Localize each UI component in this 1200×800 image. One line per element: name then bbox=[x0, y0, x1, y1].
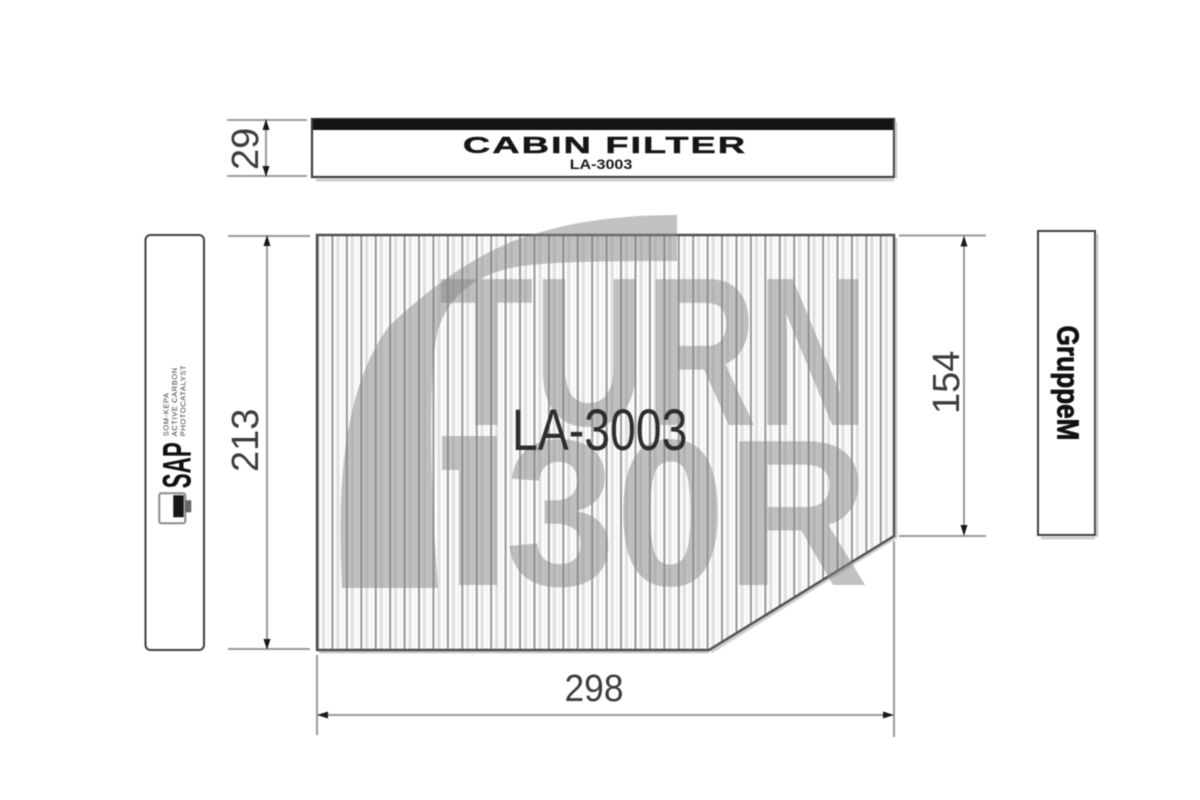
svg-text:298: 298 bbox=[565, 667, 624, 709]
svg-text:154: 154 bbox=[926, 351, 968, 414]
svg-text:LA-3003: LA-3003 bbox=[512, 398, 687, 463]
svg-text:CABIN FILTER: CABIN FILTER bbox=[463, 132, 747, 158]
svg-text:29: 29 bbox=[225, 128, 267, 170]
svg-text:PHOTOCATALYST: PHOTOCATALYST bbox=[178, 365, 187, 436]
svg-text:LA-3003: LA-3003 bbox=[570, 157, 633, 173]
svg-text:213: 213 bbox=[225, 409, 267, 472]
svg-text:SAP: SAP bbox=[154, 442, 198, 488]
svg-text:GruppeM: GruppeM bbox=[1051, 326, 1086, 441]
